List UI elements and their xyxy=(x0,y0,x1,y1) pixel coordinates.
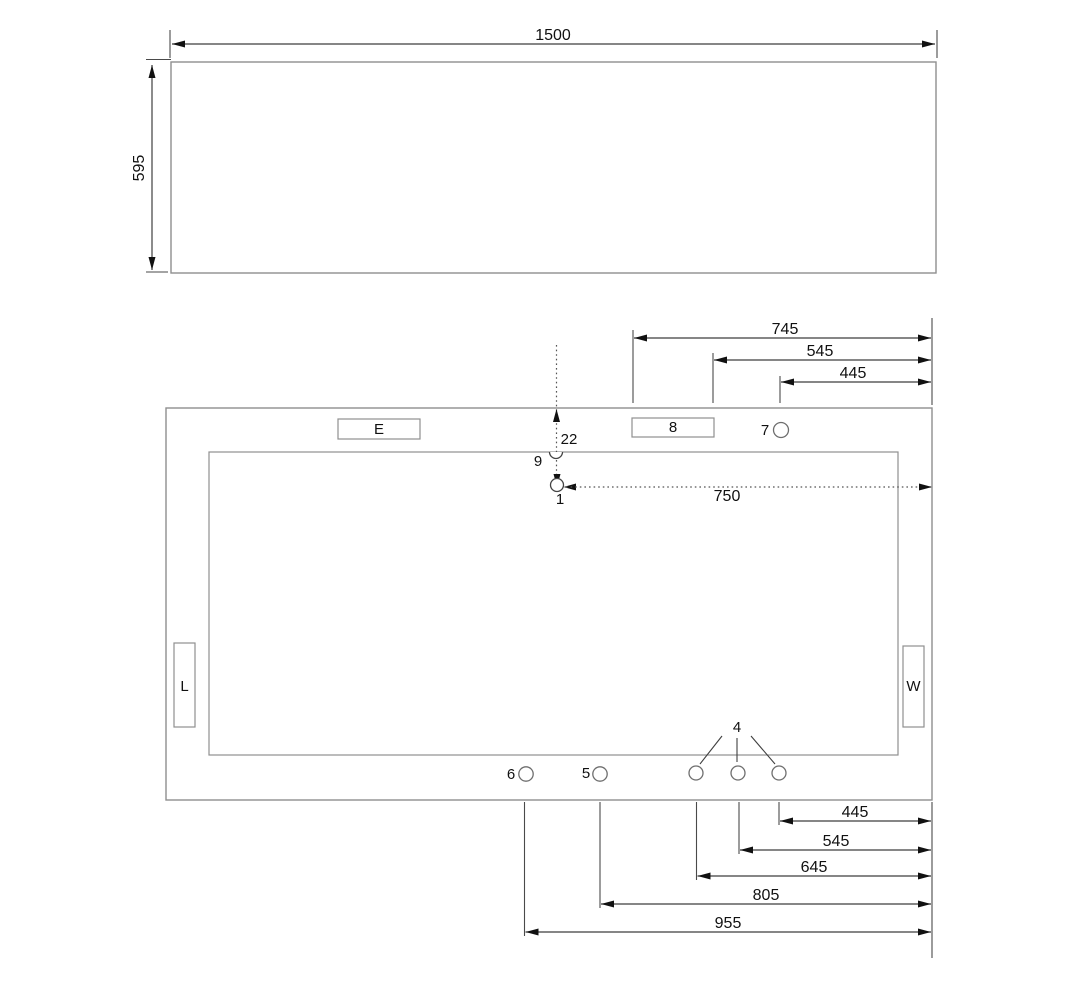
arrow-up-icon xyxy=(553,409,560,422)
dimension-text-1500: 1500 xyxy=(535,27,571,44)
hole-group-4: 4 xyxy=(689,719,786,780)
notch-9-arc xyxy=(550,452,563,459)
fitting-l-label: L xyxy=(180,678,188,695)
leader-line xyxy=(751,736,775,764)
plan-inner-outline xyxy=(209,452,898,755)
hole-5-circle xyxy=(593,767,607,781)
front-panel-outline xyxy=(171,62,936,273)
hole-4c-circle xyxy=(772,766,786,780)
hole-4-label: 4 xyxy=(733,719,741,736)
point-22-label: 22 xyxy=(561,431,578,448)
fitting-l: L xyxy=(174,643,195,727)
point-9-label: 9 xyxy=(534,453,542,470)
hole-4a-circle xyxy=(689,766,703,780)
leader-line xyxy=(700,736,722,764)
technical-drawing-page: 1500 595 E 8 7 L xyxy=(0,0,1077,1000)
datum-point-1: 22 9 1 750 xyxy=(534,345,932,508)
dimension-text-750: 750 xyxy=(714,488,741,505)
plan-bottom-dimensions: 445 545 645 805 955 xyxy=(525,802,933,958)
drawing-canvas: 1500 595 E 8 7 L xyxy=(0,0,1077,1000)
hole-6-circle xyxy=(519,767,533,781)
arrow-left-icon xyxy=(564,484,577,491)
dimension-text-645: 645 xyxy=(801,859,828,876)
dimension-text-745: 745 xyxy=(772,321,799,338)
point-1-circle xyxy=(551,479,564,492)
plan-view: E 8 7 L W 6 5 xyxy=(166,318,932,958)
fitting-w-label: W xyxy=(906,678,921,695)
fitting-e: E xyxy=(338,419,420,439)
hole-6: 6 xyxy=(507,766,533,783)
fitting-e-label: E xyxy=(374,421,384,438)
dimension-text-545-top: 545 xyxy=(807,343,834,360)
hole-7-circle xyxy=(774,423,789,438)
hole-7-label: 7 xyxy=(761,422,769,439)
hole-6-label: 6 xyxy=(507,766,515,783)
dimension-text-445-top: 445 xyxy=(840,365,867,382)
plan-top-dimensions: 745 545 445 xyxy=(633,318,932,405)
hole-7: 7 xyxy=(761,422,789,439)
plan-outer-outline xyxy=(166,408,932,800)
dimension-text-595: 595 xyxy=(131,155,148,182)
dimension-text-445-bottom: 445 xyxy=(842,804,869,821)
fitting-8-label: 8 xyxy=(669,419,677,436)
dimension-text-955: 955 xyxy=(715,915,742,932)
point-1-label: 1 xyxy=(556,491,564,508)
front-height-dimension: 595 xyxy=(131,60,171,273)
hole-4b-circle xyxy=(731,766,745,780)
fitting-w: W xyxy=(903,646,924,727)
hole-5: 5 xyxy=(582,765,607,782)
fitting-8: 8 xyxy=(632,418,714,437)
front-view: 1500 595 xyxy=(131,27,937,273)
front-width-dimension: 1500 xyxy=(170,27,937,58)
hole-5-label: 5 xyxy=(582,765,590,782)
dimension-text-805: 805 xyxy=(753,887,780,904)
dimension-text-545-bottom: 545 xyxy=(823,833,850,850)
